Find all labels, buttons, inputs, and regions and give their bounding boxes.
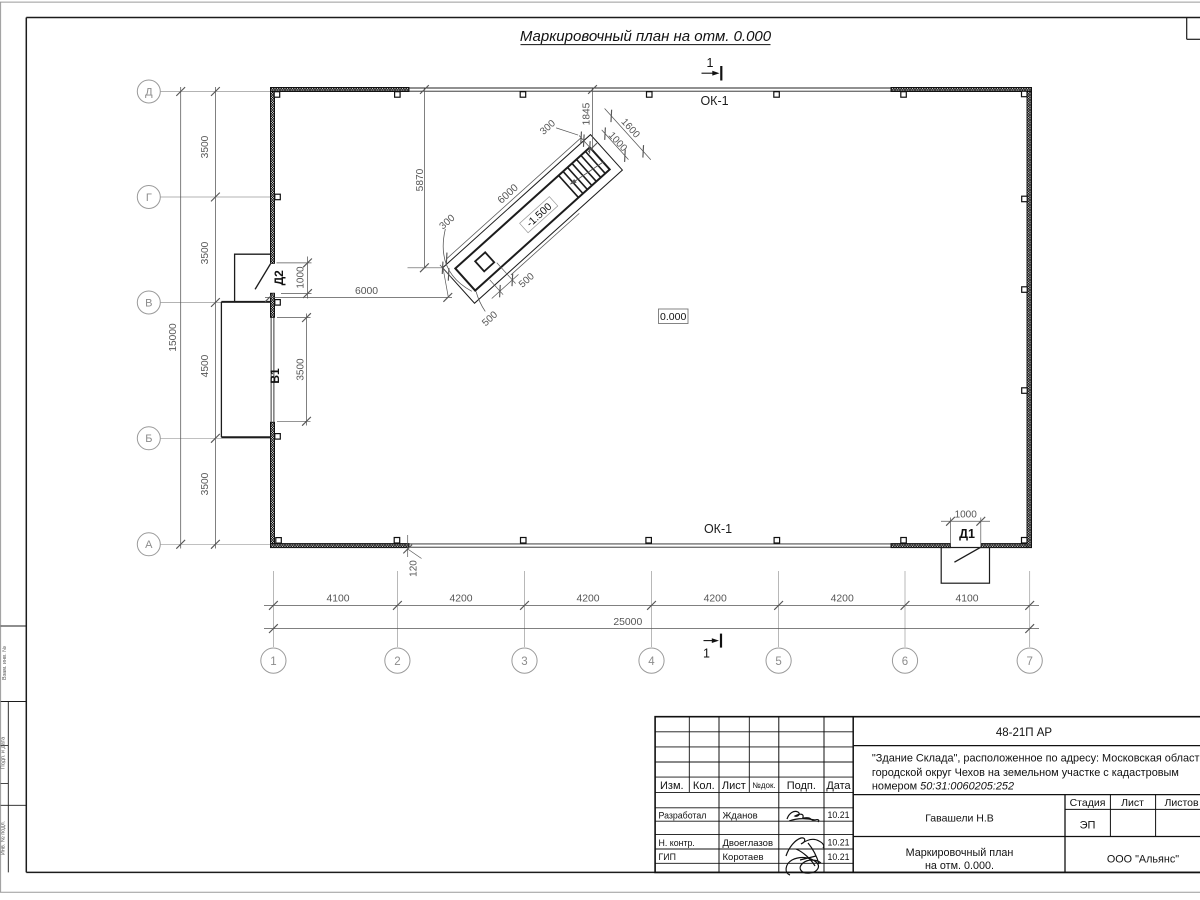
svg-text:Жданов: Жданов bbox=[723, 811, 758, 822]
svg-text:3500: 3500 bbox=[296, 358, 307, 381]
svg-text:ГИП: ГИП bbox=[659, 852, 676, 862]
svg-text:4100: 4100 bbox=[955, 594, 978, 605]
svg-text:4200: 4200 bbox=[831, 594, 854, 605]
svg-text:4: 4 bbox=[648, 656, 655, 668]
svg-text:7: 7 bbox=[1026, 656, 1032, 668]
svg-text:ОК-1: ОК-1 bbox=[704, 522, 732, 536]
svg-text:номером 50:31:0060205:252: номером 50:31:0060205:252 bbox=[872, 780, 1014, 792]
svg-text:Лист: Лист bbox=[722, 780, 746, 792]
svg-text:10.21: 10.21 bbox=[827, 852, 849, 862]
svg-text:1: 1 bbox=[270, 656, 276, 668]
svg-text:0.000: 0.000 bbox=[660, 311, 686, 323]
svg-text:В: В bbox=[145, 297, 152, 309]
svg-text:Разработал: Разработал bbox=[659, 810, 707, 820]
svg-text:Гавашели Н.В: Гавашели Н.В bbox=[925, 813, 994, 825]
svg-text:6000: 6000 bbox=[355, 286, 378, 297]
svg-text:6: 6 bbox=[902, 656, 908, 668]
svg-text:4200: 4200 bbox=[449, 594, 472, 605]
svg-text:10.21: 10.21 bbox=[827, 810, 849, 820]
svg-text:А: А bbox=[145, 539, 153, 551]
svg-text:№док.: №док. bbox=[752, 781, 775, 790]
svg-text:Стадия: Стадия bbox=[1070, 797, 1106, 809]
svg-text:ЭП: ЭП bbox=[1080, 819, 1096, 831]
svg-text:Д2: Д2 bbox=[272, 270, 286, 286]
svg-text:Б: Б bbox=[145, 433, 152, 445]
svg-text:4200: 4200 bbox=[704, 594, 727, 605]
svg-text:Взам. инв. №: Взам. инв. № bbox=[2, 646, 8, 680]
svg-text:Дата: Дата bbox=[826, 780, 851, 792]
svg-text:Листов: Листов bbox=[1164, 797, 1199, 809]
svg-text:"Здание Склада", расположенное: "Здание Склада", расположенное по адресу… bbox=[872, 752, 1200, 764]
svg-text:Д1: Д1 bbox=[959, 527, 975, 541]
svg-text:1000: 1000 bbox=[295, 266, 306, 289]
svg-text:Изм.: Изм. bbox=[660, 780, 684, 792]
svg-text:3500: 3500 bbox=[200, 241, 211, 264]
svg-text:Подп. и дата: Подп. и дата bbox=[1, 736, 7, 769]
svg-text:120: 120 bbox=[409, 560, 420, 577]
svg-text:48-21П АР: 48-21П АР bbox=[996, 727, 1053, 739]
svg-text:Коротаев: Коротаев bbox=[723, 852, 764, 863]
svg-text:Маркировочный план на отм. 0.0: Маркировочный план на отм. 0.000 bbox=[520, 28, 772, 45]
svg-text:25000: 25000 bbox=[613, 617, 642, 628]
svg-text:3500: 3500 bbox=[200, 472, 211, 495]
svg-text:2: 2 bbox=[394, 656, 400, 668]
svg-text:ОК-1: ОК-1 bbox=[700, 94, 728, 108]
svg-text:Кол.: Кол. bbox=[693, 780, 715, 792]
svg-text:на отм. 0.000.: на отм. 0.000. bbox=[925, 860, 994, 872]
svg-text:Г: Г bbox=[146, 192, 152, 204]
svg-text:В1: В1 bbox=[268, 368, 282, 384]
svg-text:Лист: Лист bbox=[1121, 797, 1144, 809]
svg-text:15000: 15000 bbox=[168, 323, 179, 352]
svg-text:Двоеглазов: Двоеглазов bbox=[723, 838, 774, 849]
svg-text:Д: Д bbox=[145, 86, 153, 98]
svg-text:Маркировочный план: Маркировочный план bbox=[906, 847, 1014, 859]
svg-text:4200: 4200 bbox=[576, 594, 599, 605]
svg-text:1: 1 bbox=[703, 647, 710, 661]
svg-text:4100: 4100 bbox=[326, 594, 349, 605]
svg-text:4500: 4500 bbox=[200, 354, 211, 377]
svg-text:1845: 1845 bbox=[582, 102, 593, 125]
svg-text:Подп.: Подп. bbox=[787, 780, 816, 792]
svg-text:Н. контр.: Н. контр. bbox=[659, 838, 695, 848]
svg-text:10.21: 10.21 bbox=[827, 838, 849, 848]
svg-text:1: 1 bbox=[707, 56, 714, 70]
svg-text:5: 5 bbox=[775, 656, 781, 668]
svg-text:1000: 1000 bbox=[955, 510, 978, 521]
svg-text:5870: 5870 bbox=[415, 168, 426, 191]
svg-text:3500: 3500 bbox=[200, 135, 211, 158]
svg-text:Инв. № подл.: Инв. № подл. bbox=[1, 820, 7, 855]
svg-text:ООО "Альянс": ООО "Альянс" bbox=[1107, 854, 1179, 866]
svg-text:3: 3 bbox=[521, 656, 527, 668]
svg-text:городской округ Чехов на земел: городской округ Чехов на земельном участ… bbox=[872, 767, 1179, 779]
